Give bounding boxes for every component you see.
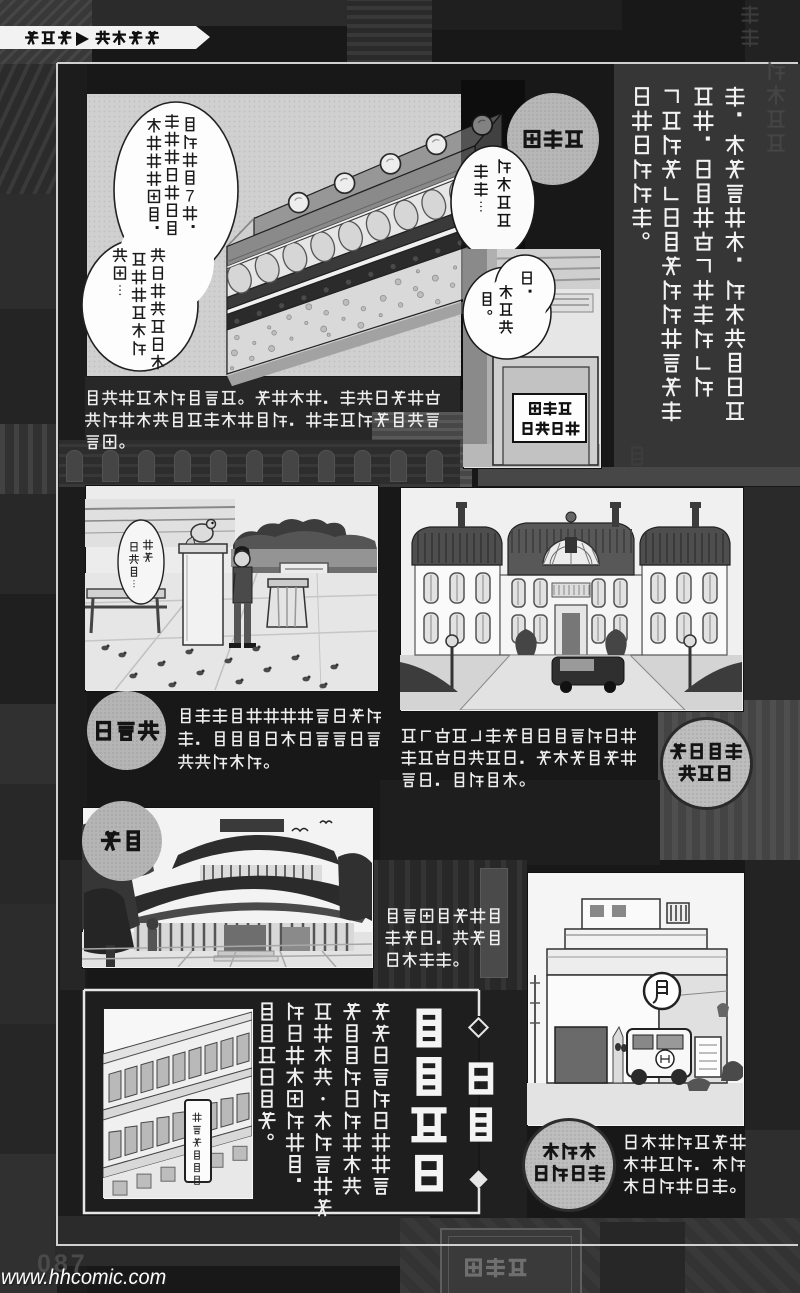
svg-text:7: 7	[185, 187, 194, 205]
